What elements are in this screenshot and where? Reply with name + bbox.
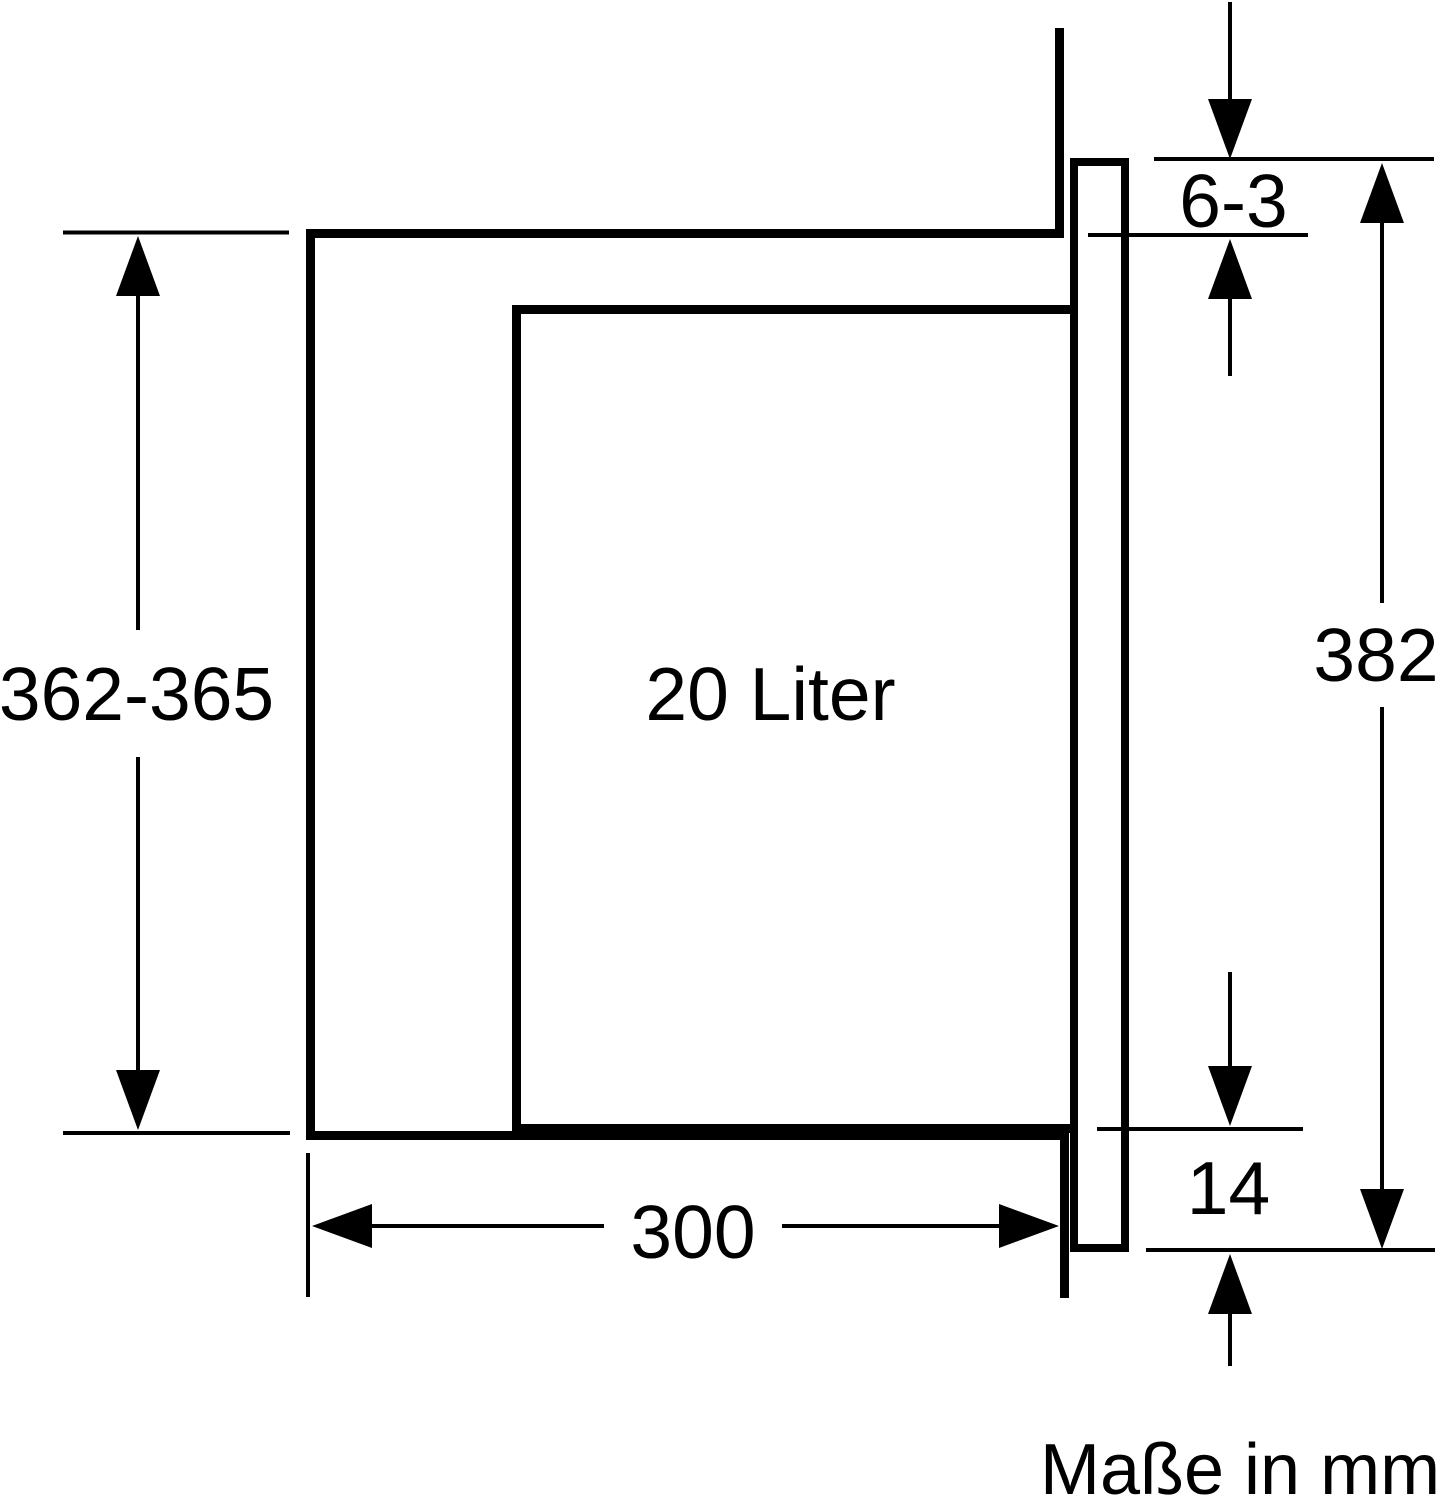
svg-text:Maße in mm: Maße in mm	[1040, 1430, 1440, 1500]
svg-text:14: 14	[1187, 1146, 1270, 1230]
svg-text:20 Liter: 20 Liter	[645, 652, 895, 736]
svg-text:382: 382	[1313, 613, 1438, 697]
svg-text:300: 300	[630, 1190, 755, 1274]
svg-text:6-3: 6-3	[1179, 159, 1287, 243]
svg-text:362-365: 362-365	[0, 652, 274, 736]
